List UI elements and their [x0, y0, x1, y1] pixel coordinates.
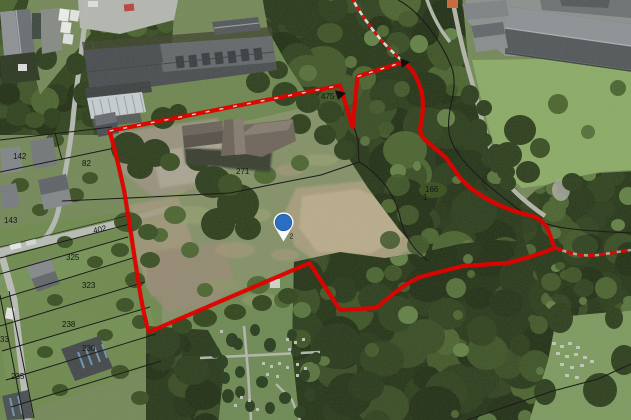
svg-text:2: 2	[290, 234, 294, 241]
svg-text:323: 323	[82, 281, 96, 290]
svg-text:271: 271	[236, 167, 250, 176]
svg-text:82: 82	[82, 159, 91, 168]
svg-text:142: 142	[13, 152, 27, 161]
svg-text:230: 230	[82, 344, 96, 353]
svg-text:235: 235	[11, 372, 25, 381]
svg-text:1: 1	[423, 193, 428, 202]
svg-text:325: 325	[66, 253, 80, 262]
svg-text:475: 475	[321, 92, 335, 101]
svg-text:33: 33	[0, 335, 9, 344]
svg-text:238: 238	[62, 320, 76, 329]
svg-text:143: 143	[4, 216, 18, 225]
